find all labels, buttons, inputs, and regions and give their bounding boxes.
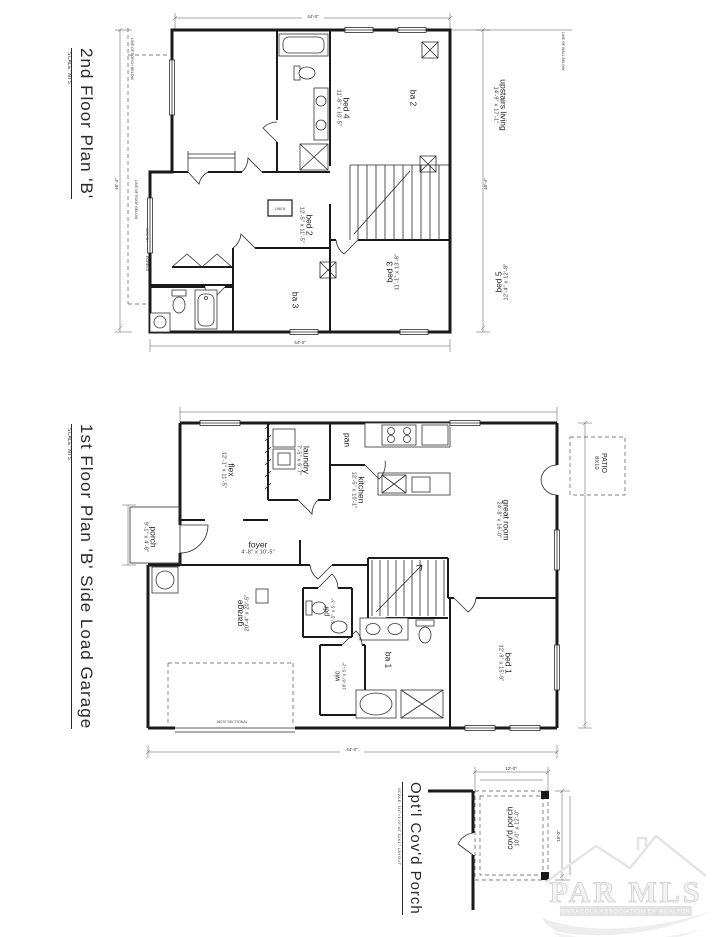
room-label-great-room: great room24'-8" x 16'-0" xyxy=(495,499,510,540)
window xyxy=(400,328,428,336)
room-label-pantry: pan xyxy=(342,433,351,447)
bath1-fixtures xyxy=(356,618,443,718)
dim-bottom: 44'-0" xyxy=(294,340,306,345)
dim-left: 40'-4" xyxy=(114,178,119,190)
garage-items xyxy=(152,567,293,723)
exterior-walls xyxy=(148,423,557,728)
vanity-sinks xyxy=(314,88,328,140)
room-label-kitchen: kitchen12'-5" x 10'-1" xyxy=(350,472,365,509)
room-label-upstairs-living: upstairs living14'-9" x 17'-1" xyxy=(492,79,507,131)
closet-rod xyxy=(188,151,235,172)
bathtub-fixture xyxy=(356,690,396,718)
room-label-ba1: ba 1 xyxy=(383,652,392,669)
watermark-text: PAR MLS xyxy=(550,876,703,909)
window xyxy=(450,419,480,427)
window xyxy=(398,26,426,34)
window xyxy=(510,724,540,732)
room-label-powder: pdr5'-5" x 5'-3" xyxy=(324,598,337,623)
stairs xyxy=(372,560,444,616)
kitchen-island xyxy=(378,473,450,495)
fridge xyxy=(422,425,448,445)
dim-top: 44'-0" xyxy=(307,14,319,19)
room-label-bed1: bed 112'-9" x 15'-9" xyxy=(497,645,512,682)
room-label-bed3: bed 311'-1" x 13'-8" xyxy=(385,254,400,290)
mls-watermark: PAR MLS PENSACOLA ASSOCIATION OF REALTOR… xyxy=(538,820,715,937)
dim-right: 40'-4" xyxy=(483,178,488,190)
toilet-fixture xyxy=(416,620,434,643)
furnace-box xyxy=(256,589,268,603)
kitchen-counters xyxy=(365,423,450,495)
door-swing xyxy=(458,833,473,855)
room-label-ba2: ba 2 xyxy=(408,90,417,107)
range-fixture xyxy=(382,425,416,445)
laundry-appliances xyxy=(273,429,295,469)
room-label-foyer: foyer4'-8" x 10'-5" xyxy=(241,540,275,555)
window xyxy=(168,60,176,115)
room-label-porch: porch9'-1" x 4'-8" xyxy=(142,522,157,552)
window xyxy=(553,645,561,690)
toilet-fixture xyxy=(294,66,315,80)
room-label-bed5: bed 512'-4" x 12'-8" xyxy=(494,264,509,301)
window-tag: 3050 SH xyxy=(145,228,149,242)
window xyxy=(553,530,561,570)
second-floor-plan-drawing: 44'-0" 40'-4" 40'-4" 44'-0" xyxy=(110,8,580,356)
bath3-fixtures xyxy=(150,290,217,332)
post-boxes xyxy=(320,42,438,278)
room-label-bed4: bed 411'-8" x 10'-5" xyxy=(335,90,350,126)
room-label-wic: wic10'-6" x 5'-2" xyxy=(335,662,348,690)
room-label-garage: garage20'-4" x 20'-5" xyxy=(235,595,250,632)
bifold-doors xyxy=(172,254,232,267)
garage-door-label: 16070 SECTIONAL xyxy=(216,720,247,724)
vanity-sinks xyxy=(360,618,408,640)
room-label-laundry: laundry7'-5" x 6'-7" xyxy=(295,445,310,475)
second-floor-scale-note: SCALE: NTS xyxy=(66,52,72,84)
room-label-ba3: ba 3 xyxy=(290,292,299,309)
bathtub-fixture xyxy=(195,290,217,329)
dim-bottom: 44'-0" xyxy=(346,747,358,752)
linen-label: LINEN xyxy=(275,207,286,211)
shower-fixture xyxy=(300,144,328,170)
first-floor-title: 1st Floor Plan 'B' Side Load Garage xyxy=(71,424,96,729)
watermark-subtext: PENSACOLA ASSOCIATION OF REALTORS xyxy=(557,910,695,916)
note-porch-below: LINE OF PORCH BELOW xyxy=(130,38,134,81)
window xyxy=(146,198,154,253)
first-floor-plan-drawing: 44'-0" xyxy=(120,405,660,770)
room-label-patio: PATIO8X10 xyxy=(593,453,607,473)
sink-fixture xyxy=(150,313,170,332)
bath2-fixtures xyxy=(279,34,328,170)
garage-door-sill xyxy=(175,728,295,732)
note-roof-below: LINE OF ROOF BELOW xyxy=(134,180,138,220)
first-floor-scale-note: SCALE: NTS xyxy=(66,428,72,460)
water-heater xyxy=(156,571,174,589)
window xyxy=(345,26,373,34)
window xyxy=(465,724,495,732)
note-wall-below: LINE OF WALL BELOW xyxy=(561,32,565,71)
window xyxy=(290,328,318,336)
egress-tag: EGRESS xyxy=(145,256,149,272)
room-label-bed2: bed 212'-5" x 11'-5" xyxy=(298,207,313,243)
windows xyxy=(200,419,561,732)
shower-fixture xyxy=(401,690,443,718)
room-label-flex: flex12'-1" x 11'-5" xyxy=(220,452,235,488)
window xyxy=(200,419,240,427)
toilet-fixture xyxy=(172,290,186,313)
stairs xyxy=(350,165,450,240)
porch-dim-top: 12'-0" xyxy=(505,766,517,771)
floor-plan-sheet: { "second_floor": { "title": "2nd Floor … xyxy=(0,0,715,937)
second-floor-title: 2nd Floor Plan 'B' xyxy=(71,48,96,199)
room-label-covd-porch: cov'd porch10'-0" x 12'-0" xyxy=(505,806,520,849)
